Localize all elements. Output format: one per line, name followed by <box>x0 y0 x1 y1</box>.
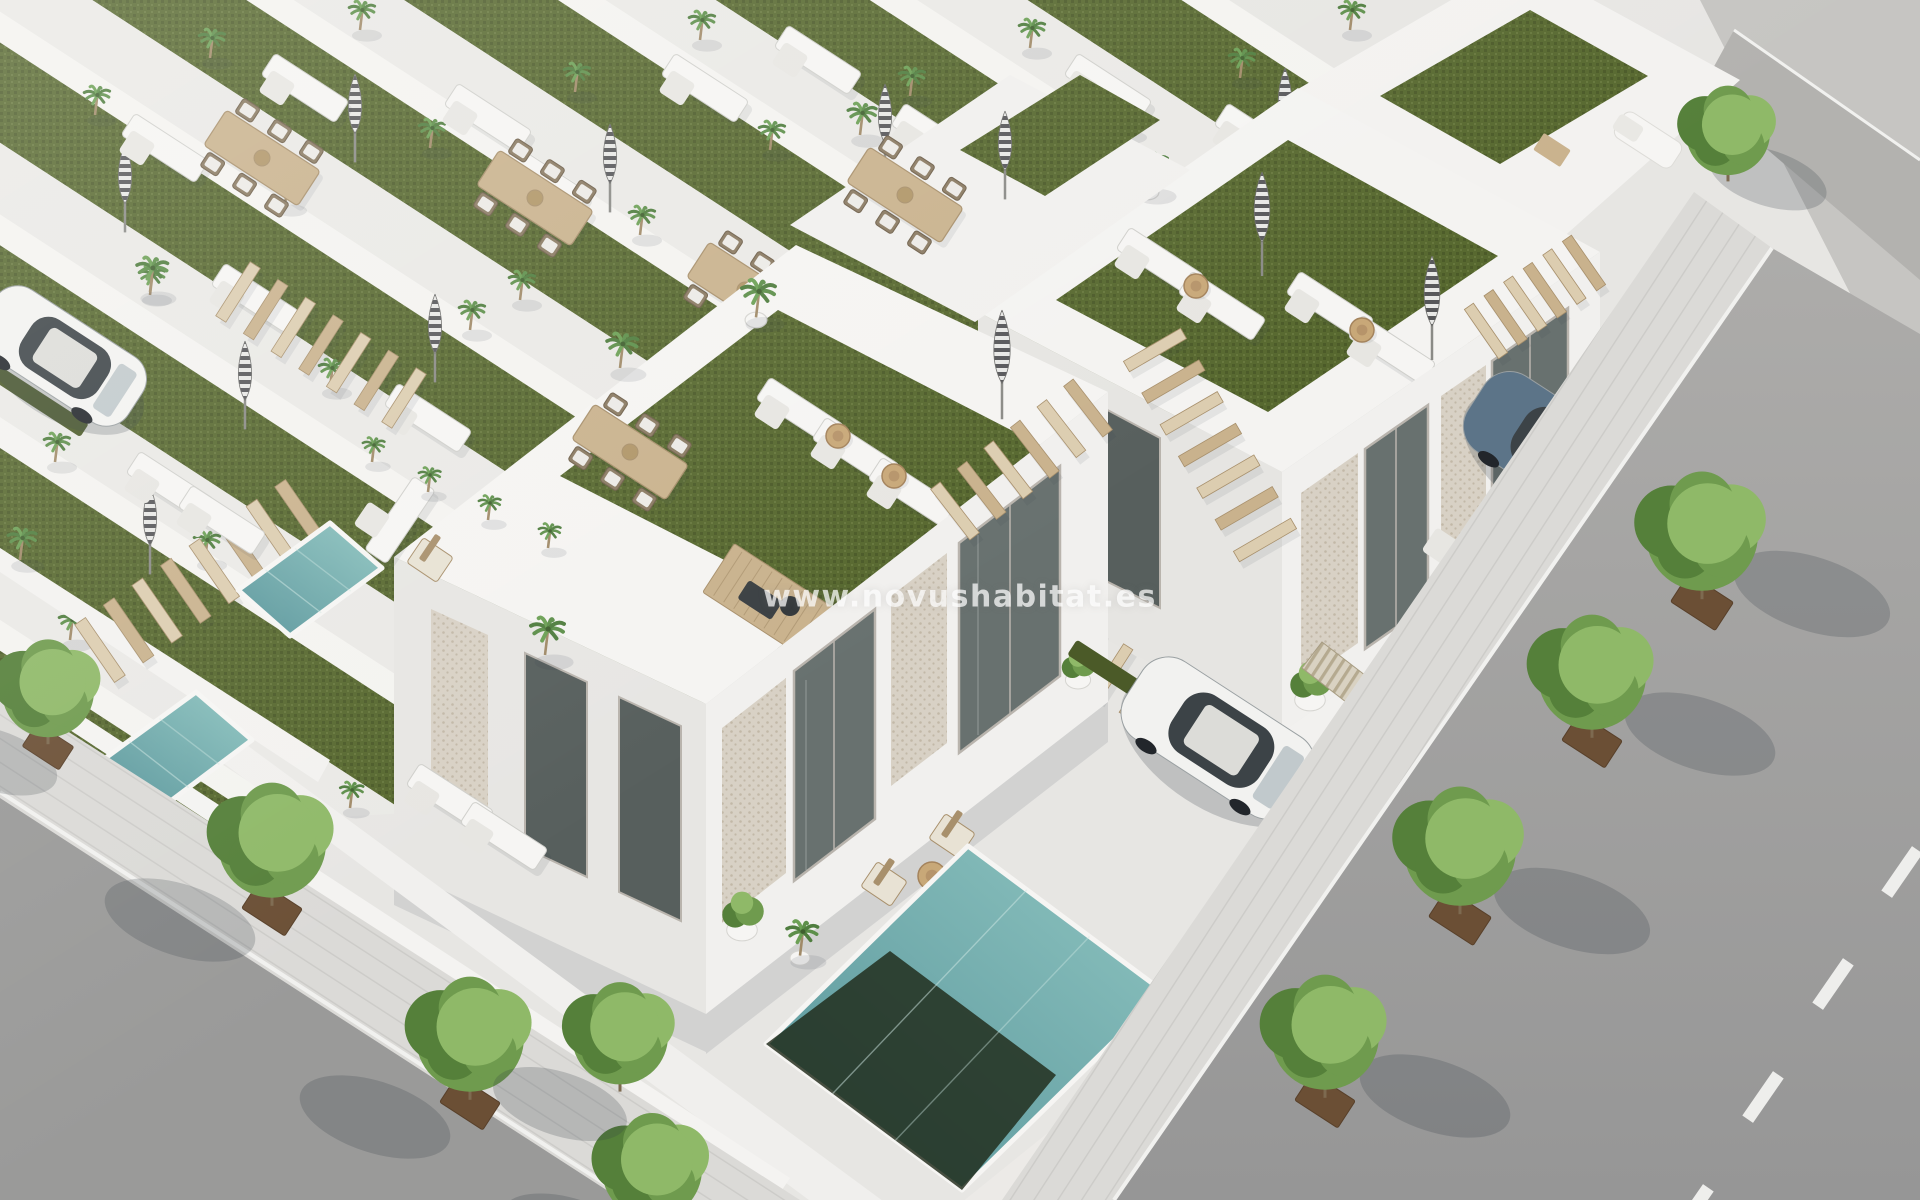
render-viewport: www.novushabitat.es <box>0 0 1920 1200</box>
villa-development-render <box>0 0 1920 1200</box>
sunlight-haze <box>0 0 1920 1200</box>
